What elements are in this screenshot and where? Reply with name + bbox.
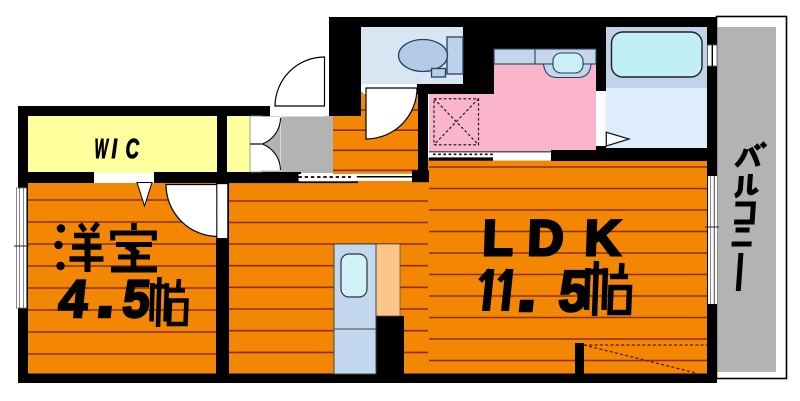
svg-text:W: W xyxy=(95,133,110,164)
svg-text:K: K xyxy=(584,210,622,266)
svg-text:D: D xyxy=(527,210,565,266)
svg-text:C: C xyxy=(126,133,140,164)
svg-text:L: L xyxy=(482,210,514,266)
svg-text:I: I xyxy=(112,133,118,164)
